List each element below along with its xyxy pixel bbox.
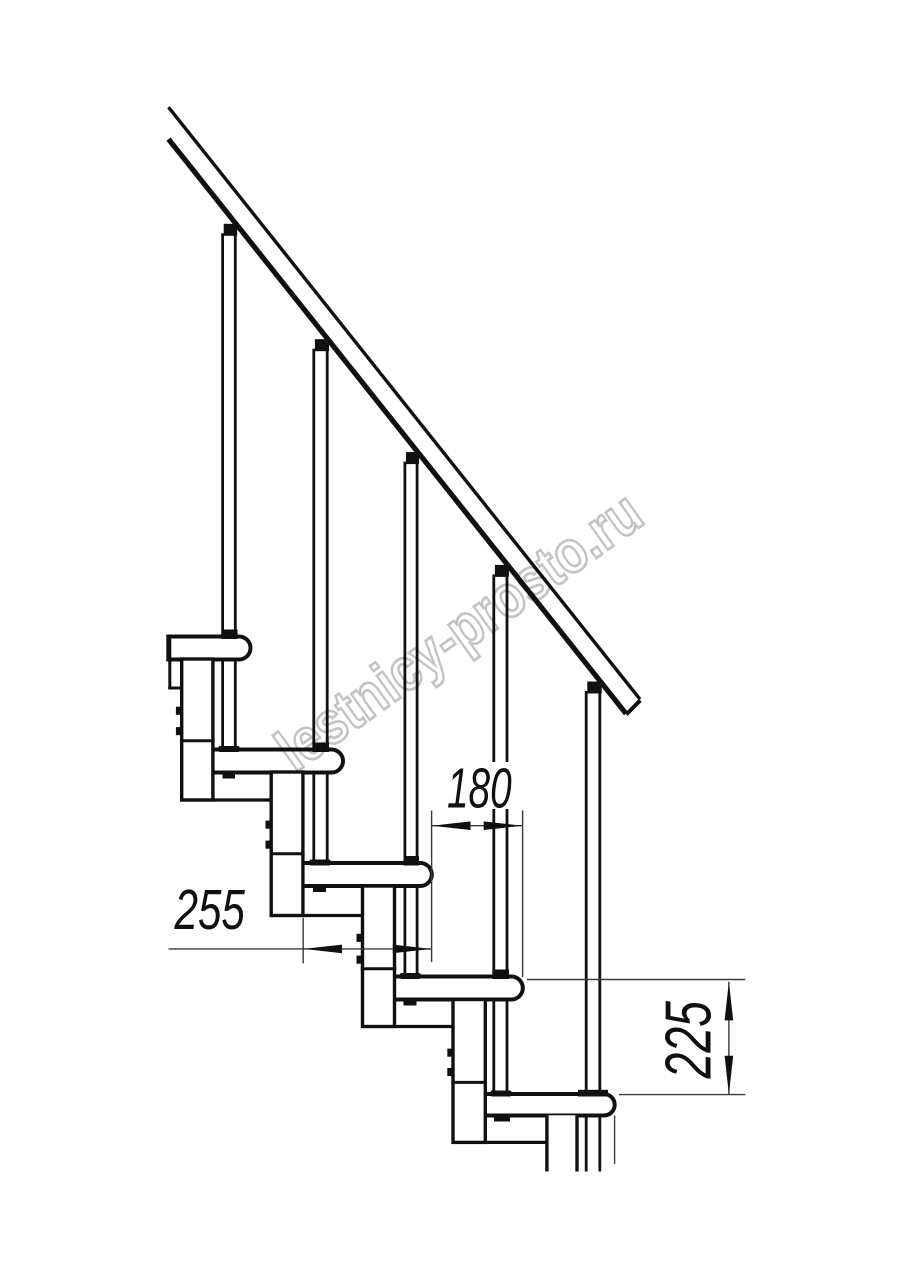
svg-text:180: 180 [447, 757, 512, 820]
svg-text:225: 225 [652, 1000, 724, 1079]
svg-text:255: 255 [174, 878, 245, 942]
